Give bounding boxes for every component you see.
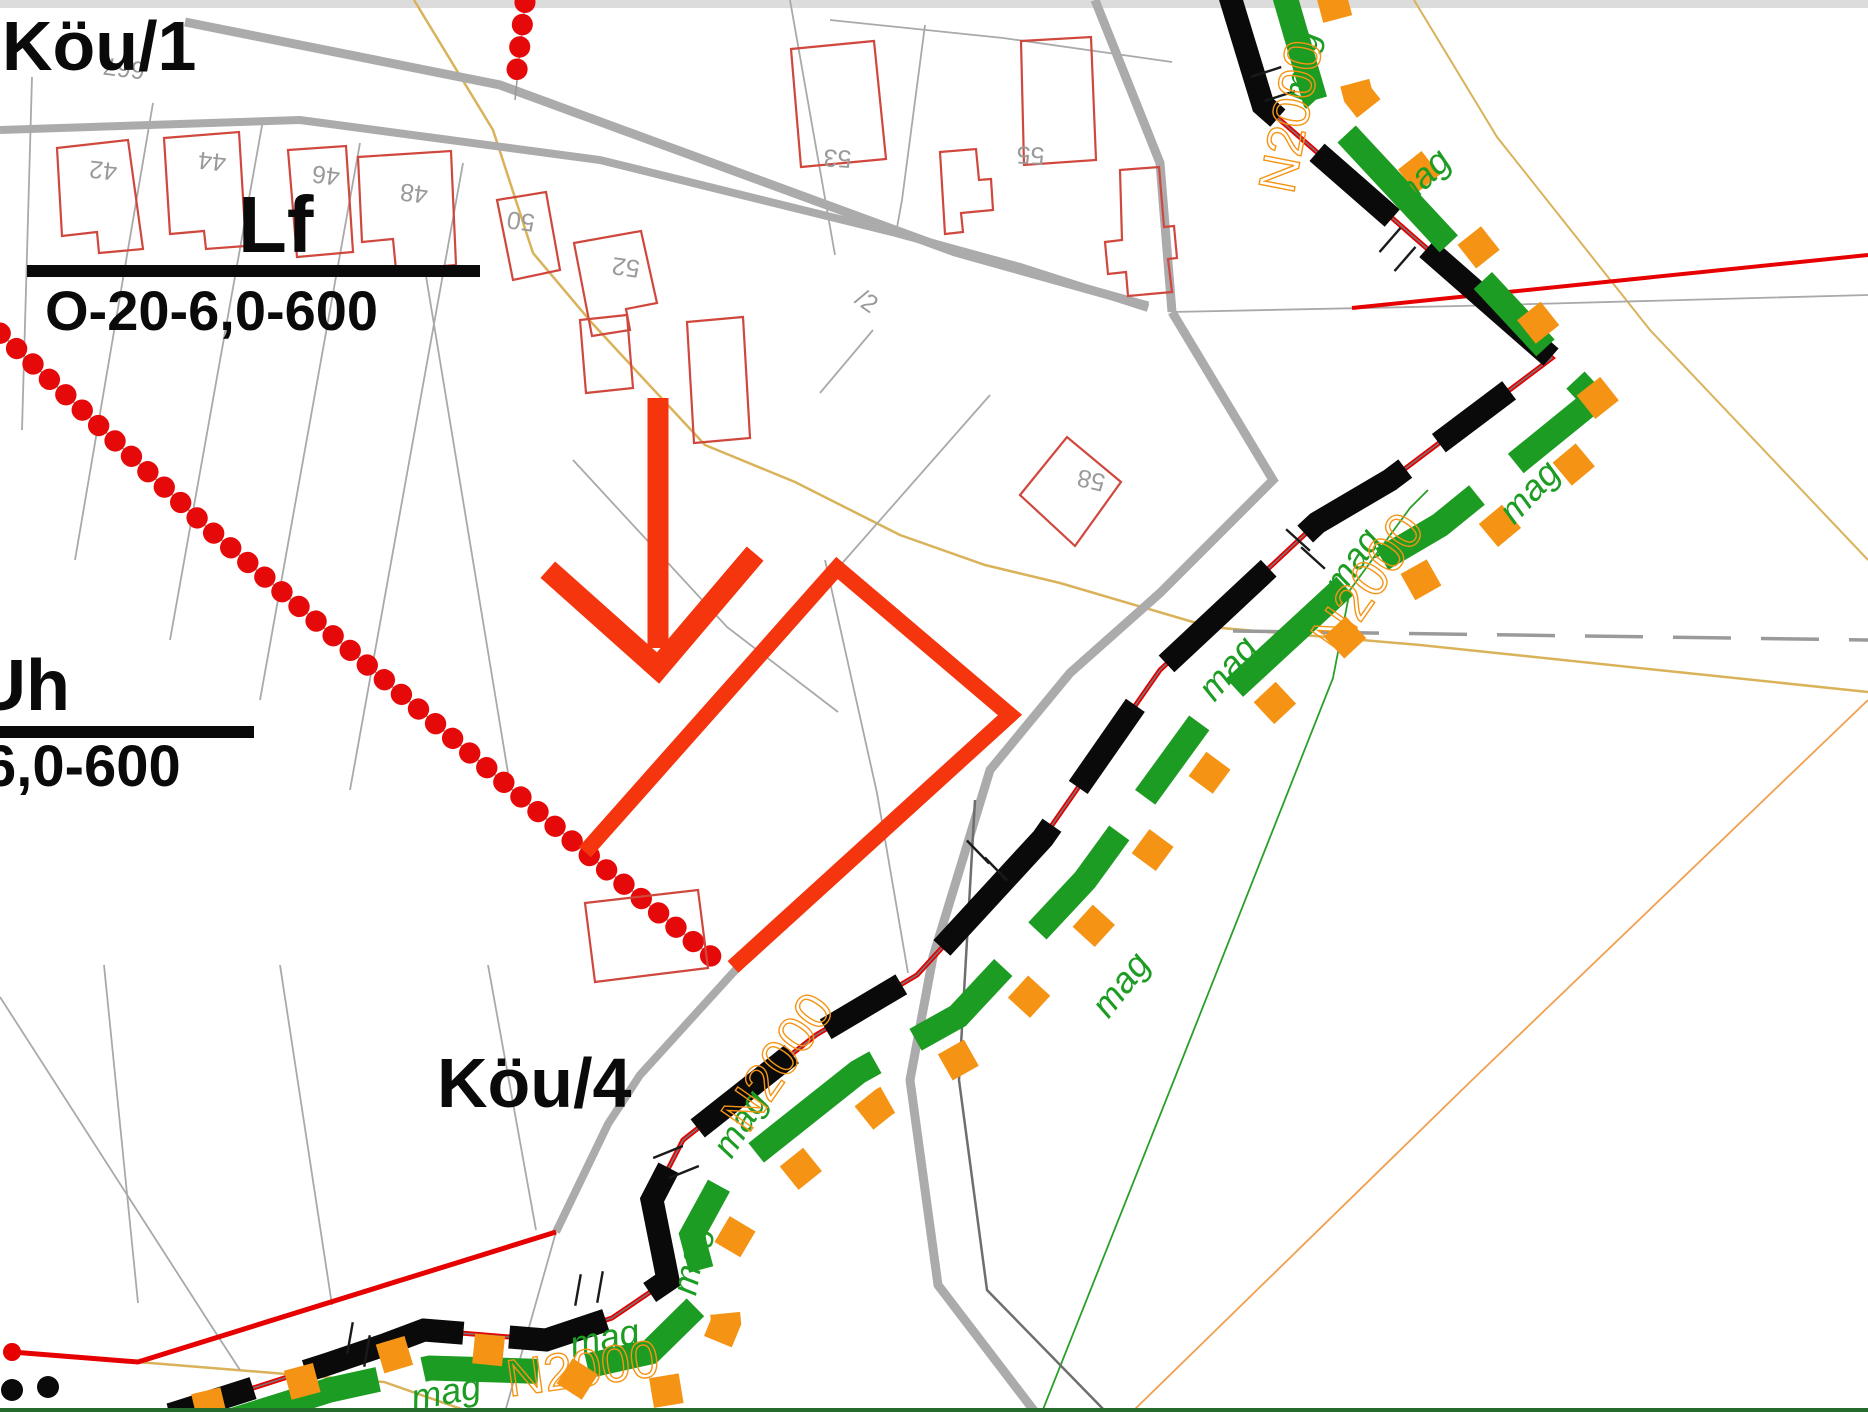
parcel-number: 52 xyxy=(610,251,641,283)
zone-code-lf-spec: O-20-6,0-600 xyxy=(45,279,378,342)
road-dash-dot xyxy=(37,1376,59,1398)
building-outline-48 xyxy=(358,151,456,270)
survey-tick xyxy=(1395,247,1416,271)
mag-label: mag xyxy=(663,1222,716,1298)
building-outline-mid xyxy=(687,317,750,443)
parcel-number: 44 xyxy=(197,146,228,177)
parcel-boundary-line xyxy=(280,965,332,1305)
parcel-boundary-line xyxy=(896,25,925,233)
map-canvas[interactable]: mag mag mag mag mag mag mag mag mag mag … xyxy=(0,0,1868,1412)
red-boundaries xyxy=(3,255,1868,1362)
parcel-boundary-line xyxy=(104,965,138,1303)
utility-orange-dashed-line xyxy=(140,0,1620,1412)
survey-ticks xyxy=(347,67,1415,1367)
parcel-number: 53 xyxy=(823,143,852,172)
survey-tick xyxy=(1380,228,1401,252)
parcel-boundary-line xyxy=(838,395,990,568)
main-road xyxy=(1,0,1552,1412)
zone-code-uh-symbol: Uh xyxy=(0,646,70,726)
survey-tick xyxy=(1301,547,1325,568)
parcel-boundary-line xyxy=(820,330,873,393)
parcel-number: 42 xyxy=(88,155,119,186)
zone-code-uh: Uh 6,0-600 xyxy=(0,646,254,799)
survey-tick xyxy=(575,1274,581,1306)
building-outline-58 xyxy=(1020,437,1121,546)
parcel-boundary-line xyxy=(0,997,240,1370)
parcel-boundary-line xyxy=(573,460,838,712)
mag-label: mag xyxy=(408,1365,484,1412)
parcel-number: 55 xyxy=(1016,140,1045,169)
road-dash-dot xyxy=(1,1379,23,1401)
road-edges xyxy=(0,0,1273,1412)
parcel-number: 48 xyxy=(399,177,430,208)
zone-code-uh-spec: 6,0-600 xyxy=(0,734,181,799)
red-boundary-node xyxy=(3,1343,21,1361)
map-viewport[interactable]: mag mag mag mag mag mag mag mag mag mag … xyxy=(0,0,1868,1412)
buildings xyxy=(57,37,1177,982)
bottom-edge-strip xyxy=(0,1408,1868,1412)
parcel-number: 50 xyxy=(505,205,536,237)
survey-tick xyxy=(597,1271,603,1303)
parcel-number: 46 xyxy=(311,159,342,190)
zone-code-divider xyxy=(27,265,480,277)
parcel-number: /2 xyxy=(850,284,883,319)
zone-label-kou4: Köu/4 xyxy=(437,1044,632,1122)
building-outline-notched xyxy=(940,149,993,234)
parcel-boundary-line xyxy=(425,270,510,785)
zone-code-lf-symbol: Lf xyxy=(238,180,314,269)
window-top-edge xyxy=(0,0,1868,8)
dotted-boundary-dots xyxy=(0,333,718,962)
building-outline-mid xyxy=(580,315,633,393)
n2000-label: N2000 xyxy=(710,983,845,1142)
mag-label: mag xyxy=(1082,944,1157,1024)
zone-label-kou1: Köu/1 xyxy=(2,7,196,85)
utility-thin-orange-line xyxy=(1132,700,1868,1412)
